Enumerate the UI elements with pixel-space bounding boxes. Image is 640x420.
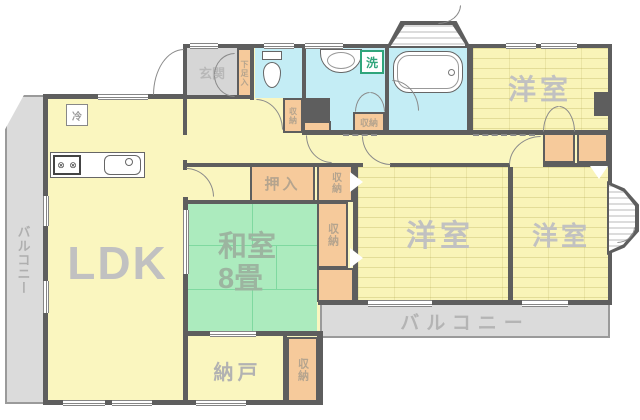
- wall: [43, 94, 48, 405]
- bay-window-arc: [617, 227, 635, 243]
- wall: [183, 95, 187, 135]
- balcony-left-label: バルコニー: [10, 190, 36, 330]
- closet-beside-oshiire: 収納: [317, 164, 353, 202]
- bath-vent-arc: [438, 5, 461, 24]
- closet-top-right-a: [543, 133, 575, 163]
- window: [112, 400, 152, 406]
- dashed-line: [473, 134, 535, 136]
- wall: [385, 44, 389, 134]
- tatami-room-label: 和室 8畳: [218, 232, 318, 304]
- toilet-tank: [262, 51, 282, 60]
- sliding-door: [210, 331, 256, 337]
- sliding-door-balcony: [522, 300, 568, 307]
- window: [63, 400, 105, 406]
- refrigerator-label: 冷: [72, 108, 82, 123]
- tatami-label-line2: 8畳: [218, 264, 318, 296]
- wall: [465, 44, 612, 48]
- washing-machine: 洗: [360, 50, 384, 74]
- closet-washroom-label: 収納: [360, 116, 378, 129]
- oshiire-closet: 押入: [250, 164, 315, 202]
- wall: [508, 167, 513, 302]
- burner-icon: ⊗: [69, 160, 77, 171]
- wall: [283, 333, 287, 403]
- closet-middle-lower: [317, 268, 354, 302]
- tatami-label-line1: 和室: [218, 232, 318, 264]
- sliding-door: [183, 210, 189, 274]
- wall: [250, 44, 254, 100]
- wall: [317, 331, 323, 405]
- bedroom-right-label: 洋室: [522, 216, 600, 252]
- washing-machine-label: 洗: [366, 54, 378, 71]
- closet-beside-oshiire-label: 収納: [328, 172, 343, 194]
- window: [190, 43, 218, 49]
- nando-label: 納戸: [200, 355, 275, 385]
- window: [506, 43, 536, 49]
- window: [43, 196, 49, 226]
- kitchen-sink: [104, 155, 141, 175]
- closet-middle: 収納: [317, 202, 348, 268]
- closet-nando-label: 収納: [295, 358, 311, 382]
- floor-plan: バルコニー バルコニー 玄関 下足入 洗 洋室 洋室 洋室 和室 8畳 LDK: [0, 0, 640, 420]
- ldk-label: LDK: [55, 235, 180, 291]
- closet-washroom: 収納: [353, 112, 385, 132]
- window: [305, 43, 343, 49]
- oshiire-label: 押入: [264, 173, 300, 194]
- closet-nando: 収納: [287, 337, 318, 403]
- wall: [608, 251, 612, 305]
- window: [196, 400, 246, 406]
- duct-block: [303, 98, 330, 121]
- window: [541, 43, 577, 49]
- burner-icon: ⊗: [57, 160, 65, 171]
- bedroom-middle-label: 洋室: [395, 212, 485, 254]
- closet-hall: 収納: [283, 98, 303, 133]
- washbasin-bowl: [327, 52, 355, 69]
- wall: [302, 44, 306, 100]
- stove: ⊗⊗: [53, 155, 81, 175]
- wall: [608, 138, 612, 184]
- refrigerator: 冷: [66, 104, 88, 126]
- wall: [608, 44, 612, 138]
- closet-top-right-b: [577, 133, 608, 163]
- sliding-door-balcony: [368, 300, 432, 307]
- closet-middle-label: 収納: [325, 223, 341, 247]
- wall: [390, 163, 510, 167]
- window: [264, 43, 294, 49]
- bedroom-top-label: 洋室: [495, 68, 585, 108]
- wall: [467, 44, 473, 134]
- wall: [183, 163, 363, 167]
- wall: [185, 200, 320, 204]
- pillar-block: [594, 92, 608, 116]
- window: [98, 94, 148, 100]
- shoe-cabinet-label: 下足入: [239, 60, 250, 87]
- wall: [183, 95, 253, 99]
- door-arc-entrance: [153, 49, 184, 95]
- balcony-bottom-label: バルコニー: [380, 308, 550, 334]
- closet-hall-label: 収納: [288, 107, 299, 125]
- window: [43, 281, 49, 313]
- faucet: [125, 158, 133, 166]
- bathtub-drain: [448, 69, 455, 76]
